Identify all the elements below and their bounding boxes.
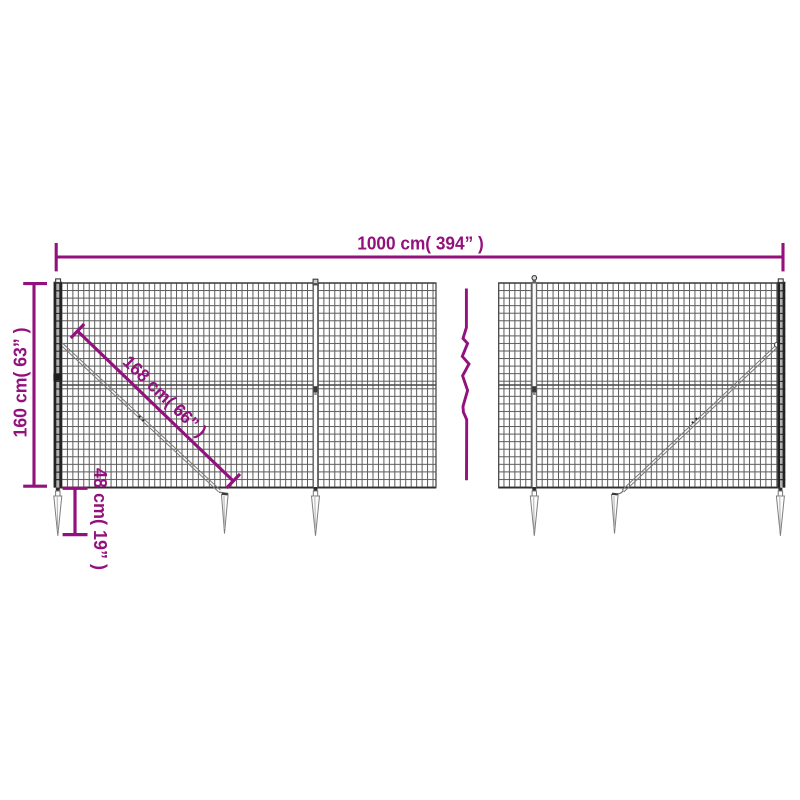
svg-text:48 cm( 19” ): 48 cm( 19” ) <box>90 468 110 570</box>
svg-text:160 cm( 63” ): 160 cm( 63” ) <box>11 327 31 437</box>
svg-text:1000 cm( 394” ): 1000 cm( 394” ) <box>357 234 484 254</box>
